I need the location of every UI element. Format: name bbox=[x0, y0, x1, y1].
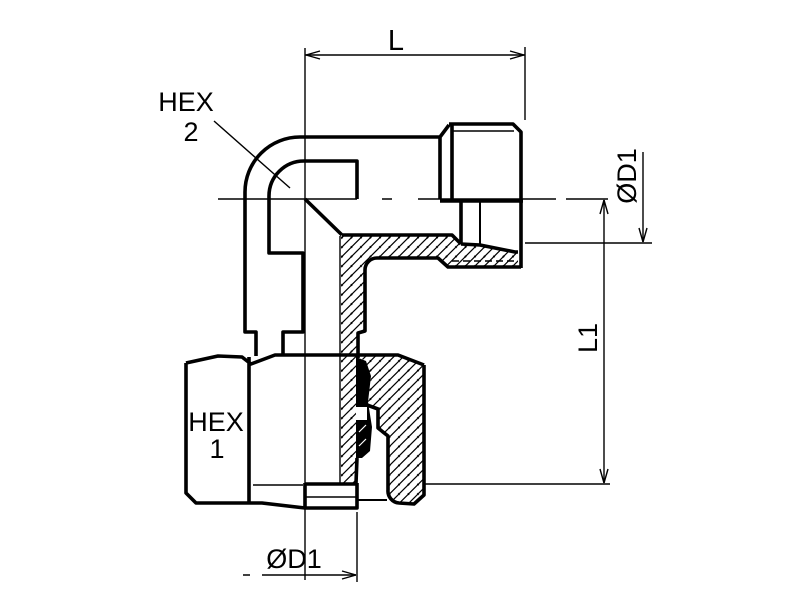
dimension-L1-label: L1 bbox=[573, 323, 603, 353]
dimension-D1-side: ØD1 bbox=[525, 148, 652, 243]
dimension-D1-side-label: ØD1 bbox=[612, 148, 642, 204]
body-outline bbox=[245, 124, 523, 508]
dimension-D1-bottom-label: ØD1 bbox=[266, 544, 322, 574]
dimension-D1-bottom: ØD1 bbox=[243, 512, 357, 582]
label-hex1: HEX 1 bbox=[188, 407, 244, 464]
elbow-fitting-drawing: L ØD1 L1 ØD1 HEX 2 HEX 1 bbox=[0, 0, 800, 600]
dimension-L-label: L bbox=[388, 25, 404, 57]
dimension-L: L bbox=[305, 25, 525, 120]
label-hex2: HEX 2 bbox=[158, 87, 290, 188]
hex1-number: 1 bbox=[209, 434, 224, 464]
technical-drawing-canvas: L ØD1 L1 ØD1 HEX 2 HEX 1 bbox=[0, 0, 800, 600]
hex2-text: HEX bbox=[158, 87, 214, 117]
hex2-leader-line bbox=[214, 121, 290, 188]
ferrule-notch bbox=[356, 407, 367, 420]
hex1-text: HEX bbox=[188, 407, 244, 437]
hex2-number: 2 bbox=[183, 117, 198, 147]
thin-edges bbox=[253, 131, 517, 500]
